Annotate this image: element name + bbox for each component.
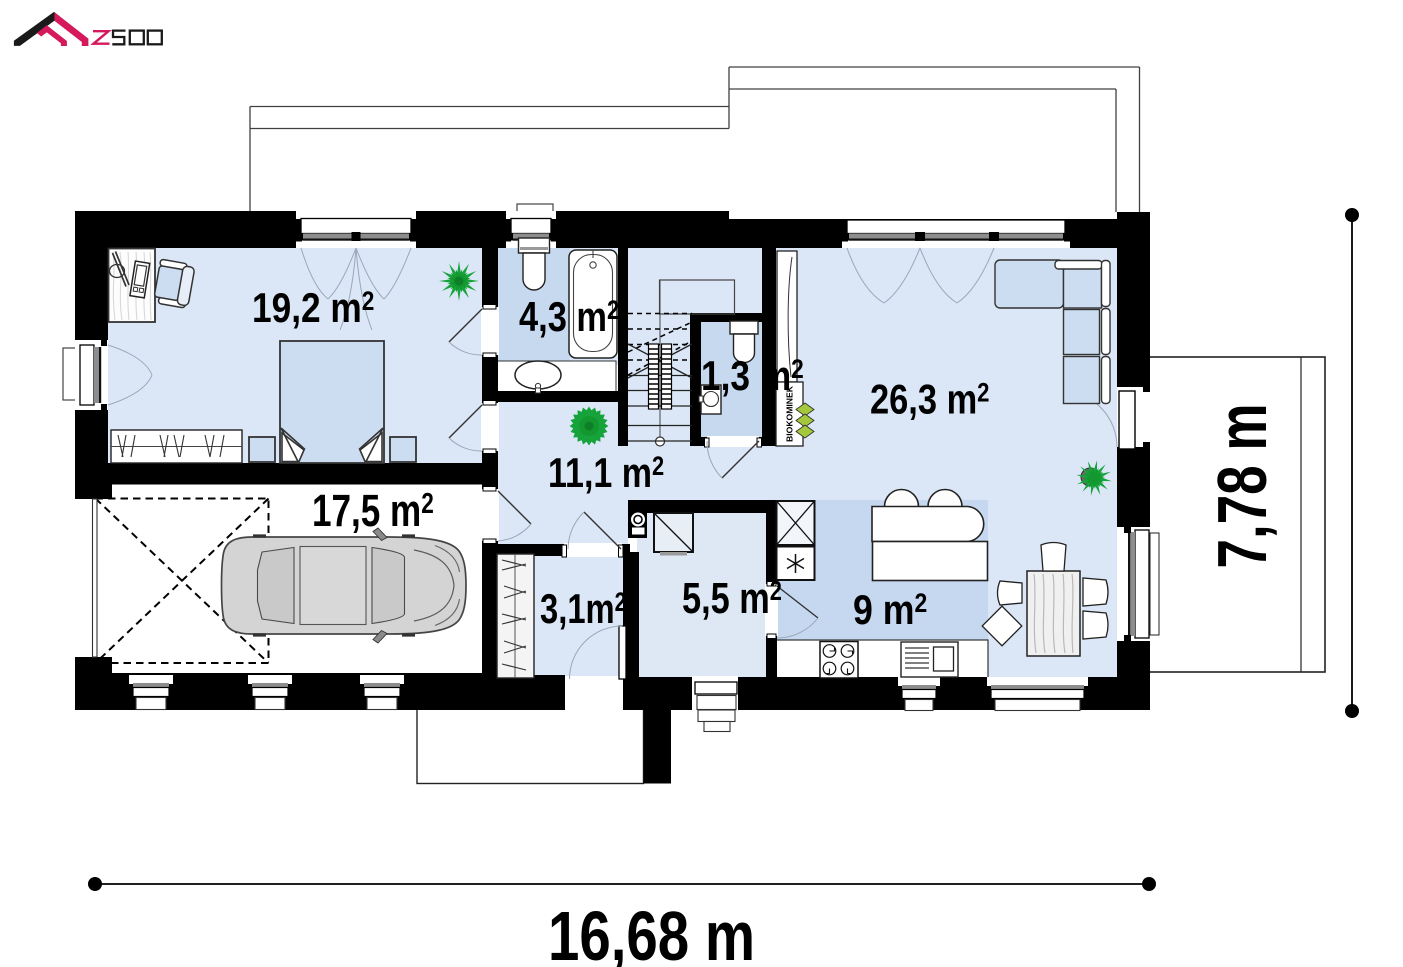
svg-text:7,78 m: 7,78 m <box>1204 404 1282 569</box>
svg-text:16,68 m: 16,68 m <box>548 897 755 967</box>
svg-text:3,1m2: 3,1m2 <box>540 585 626 632</box>
svg-text:26,3 m2: 26,3 m2 <box>870 376 990 423</box>
svg-text:5,5 m2: 5,5 m2 <box>682 574 782 623</box>
svg-text:4,3 m2: 4,3 m2 <box>519 294 619 341</box>
svg-text:1,3 m2: 1,3 m2 <box>701 353 804 400</box>
svg-text:11,1 m2: 11,1 m2 <box>548 450 664 497</box>
svg-text:19,2 m2: 19,2 m2 <box>252 285 374 332</box>
svg-text:17,5 m2: 17,5 m2 <box>312 485 434 536</box>
